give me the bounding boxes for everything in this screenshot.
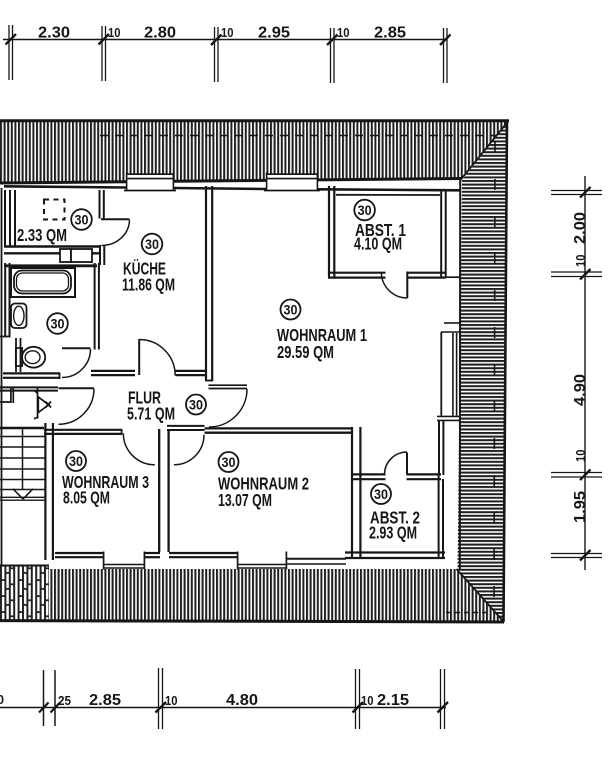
svg-text:2.15: 2.15 [377, 692, 409, 709]
svg-text:30: 30 [284, 302, 298, 317]
svg-text:11.86 QM: 11.86 QM [122, 275, 175, 295]
svg-text:5.71 QM: 5.71 QM [127, 404, 175, 424]
svg-text:4.90: 4.90 [572, 374, 589, 406]
svg-text:30: 30 [189, 397, 203, 412]
svg-text:10: 10 [573, 450, 588, 463]
svg-text:30: 30 [69, 454, 83, 469]
svg-text:4.80: 4.80 [226, 692, 258, 709]
svg-text:0: 0 [0, 692, 4, 707]
svg-text:30: 30 [222, 455, 236, 470]
svg-text:30: 30 [75, 212, 89, 227]
svg-text:2.33 QM: 2.33 QM [17, 225, 67, 245]
svg-text:30: 30 [145, 237, 159, 252]
svg-text:4.10 QM: 4.10 QM [354, 234, 402, 254]
svg-text:10: 10 [221, 25, 234, 40]
svg-text:1.95: 1.95 [572, 491, 589, 523]
svg-text:30: 30 [51, 316, 65, 331]
svg-text:2.93 QM: 2.93 QM [369, 523, 417, 543]
svg-text:30: 30 [358, 203, 372, 218]
svg-text:2.00: 2.00 [572, 212, 589, 244]
svg-text:13.07 QM: 13.07 QM [218, 490, 272, 510]
svg-text:30: 30 [374, 487, 388, 502]
svg-text:10: 10 [573, 255, 588, 268]
svg-text:10: 10 [108, 25, 121, 40]
svg-text:2.95: 2.95 [258, 25, 290, 42]
svg-text:8.05 QM: 8.05 QM [63, 488, 110, 508]
svg-text:10: 10 [337, 25, 350, 40]
svg-text:2.85: 2.85 [374, 25, 406, 42]
svg-text:2.30: 2.30 [38, 25, 70, 42]
svg-text:10: 10 [165, 693, 178, 708]
svg-text:10: 10 [361, 693, 374, 708]
svg-text:2.85: 2.85 [89, 692, 121, 709]
svg-text:2.80: 2.80 [144, 25, 176, 42]
svg-text:29.59 QM: 29.59 QM [277, 342, 334, 362]
svg-text:25: 25 [58, 693, 71, 708]
